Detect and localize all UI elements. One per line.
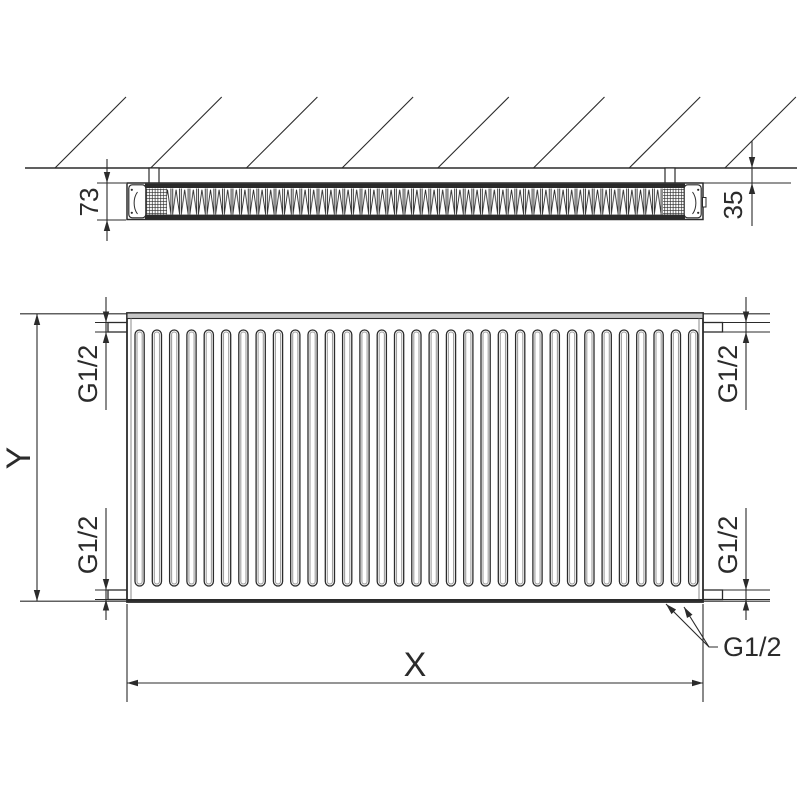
radiator-fin <box>602 330 611 586</box>
wall-gap-label: 35 <box>718 191 748 220</box>
connection-label-callout: G1/2 <box>723 632 782 662</box>
arrowhead-down-icon <box>743 579 749 590</box>
radiator-fin <box>516 330 525 586</box>
radiator-fin <box>464 330 473 586</box>
radiator-top-view <box>127 183 706 220</box>
connection-dim-bottom-right <box>743 508 749 620</box>
radiator-fin <box>360 330 369 586</box>
connection-label-top-left: G1/2 <box>73 345 103 404</box>
arrowhead-up-icon <box>103 332 109 343</box>
radiator-fin <box>135 330 144 586</box>
connection-callout <box>666 604 718 647</box>
depth-label: 73 <box>74 188 104 217</box>
radiator-fin <box>152 330 161 586</box>
radiator-fin <box>446 330 455 586</box>
arrowhead-right-icon <box>692 680 703 686</box>
arrowhead-up-left-icon <box>684 607 693 618</box>
connection-dim-top-right <box>743 297 749 410</box>
radiator-fin <box>239 330 248 586</box>
arrowhead-up-icon <box>34 314 40 325</box>
front-view: Y <box>0 297 782 702</box>
convector-fins-top-view <box>146 189 684 215</box>
radiator-fin <box>550 330 559 586</box>
wall-hatch-line <box>151 97 222 168</box>
end-cap-right-nub <box>703 198 707 208</box>
arrowhead-down-icon <box>103 312 109 323</box>
radiator-fin <box>377 330 386 586</box>
arrowhead-up-icon <box>743 332 749 343</box>
end-cap-left-screw-bottom <box>131 212 133 214</box>
connection-label-top-right: G1/2 <box>713 345 743 404</box>
radiator-fin <box>204 330 213 586</box>
radiator-fin <box>498 330 507 586</box>
radiator-fin <box>533 330 542 586</box>
arrowhead-up-icon <box>104 220 110 231</box>
wall-hatch-line <box>629 97 700 168</box>
radiator-fin <box>291 330 300 586</box>
arrowhead-up-icon <box>749 183 755 194</box>
radiator-fin <box>273 330 282 586</box>
radiator-fin <box>412 330 421 586</box>
arrowhead-down-icon <box>104 172 110 183</box>
connection-label-bottom-right: G1/2 <box>713 516 743 575</box>
convector-fin-end-left-grid <box>146 189 167 215</box>
connection-label-bottom-left: G1/2 <box>73 516 103 575</box>
radiator-fin <box>187 330 196 586</box>
end-cap-right-screw-top <box>697 189 699 191</box>
width-label: X <box>404 646 427 684</box>
radiator-fin <box>170 330 179 586</box>
radiator-fin <box>325 330 334 586</box>
wall-hatching <box>55 97 796 168</box>
arrowhead-down-icon <box>34 590 40 601</box>
wall-hatch-line <box>55 97 126 168</box>
height-label: Y <box>0 447 38 470</box>
end-cap-left-screw-top <box>131 189 133 191</box>
radiator-fin <box>585 330 594 586</box>
wall-bracket-right <box>665 168 675 185</box>
connection-dim-top-left <box>103 297 109 410</box>
arrowhead-left-icon <box>127 680 138 686</box>
radiator-fin <box>343 330 352 586</box>
radiator-fin <box>429 330 438 586</box>
connection-stub-top-right <box>703 323 723 333</box>
connection-stub-bottom-left <box>108 590 128 600</box>
radiator-fin <box>395 330 404 586</box>
wall-hatch-line <box>246 97 317 168</box>
radiator-fin <box>481 330 490 586</box>
radiator-fin <box>222 330 231 586</box>
wall-hatch-line <box>725 97 796 168</box>
connection-dim-bottom-left <box>103 508 109 620</box>
radiator-front-view <box>127 313 703 602</box>
wall-hatch-line <box>342 97 413 168</box>
radiator-fin <box>654 330 663 586</box>
convector-fin-end-right-grid <box>663 189 684 215</box>
wall-bracket-left <box>149 168 159 185</box>
wall-hatch-line <box>438 97 509 168</box>
connection-stub-top-left <box>108 323 128 333</box>
radiator-fin <box>256 330 265 586</box>
radiator-fin <box>671 330 680 586</box>
radiator-back-plate <box>145 184 685 188</box>
radiator-fin <box>308 330 317 586</box>
wall-hatch-line <box>534 97 605 168</box>
radiator-front-plate <box>145 215 685 219</box>
arrowhead-down-icon <box>103 579 109 590</box>
radiator-fin <box>619 330 628 586</box>
top-grille-rail <box>127 313 703 319</box>
radiator-fin <box>637 330 646 586</box>
top-view: 73 35 <box>25 97 797 241</box>
radiator-fin <box>568 330 577 586</box>
radiator-technical-drawing: 73 35 Y <box>0 0 800 800</box>
connection-stub-bottom-right <box>703 590 723 600</box>
end-cap-right-screw-bottom <box>697 212 699 214</box>
arrowhead-down-icon <box>743 312 749 323</box>
radiator-fin <box>689 330 698 586</box>
arrowhead-down-icon <box>749 157 755 168</box>
